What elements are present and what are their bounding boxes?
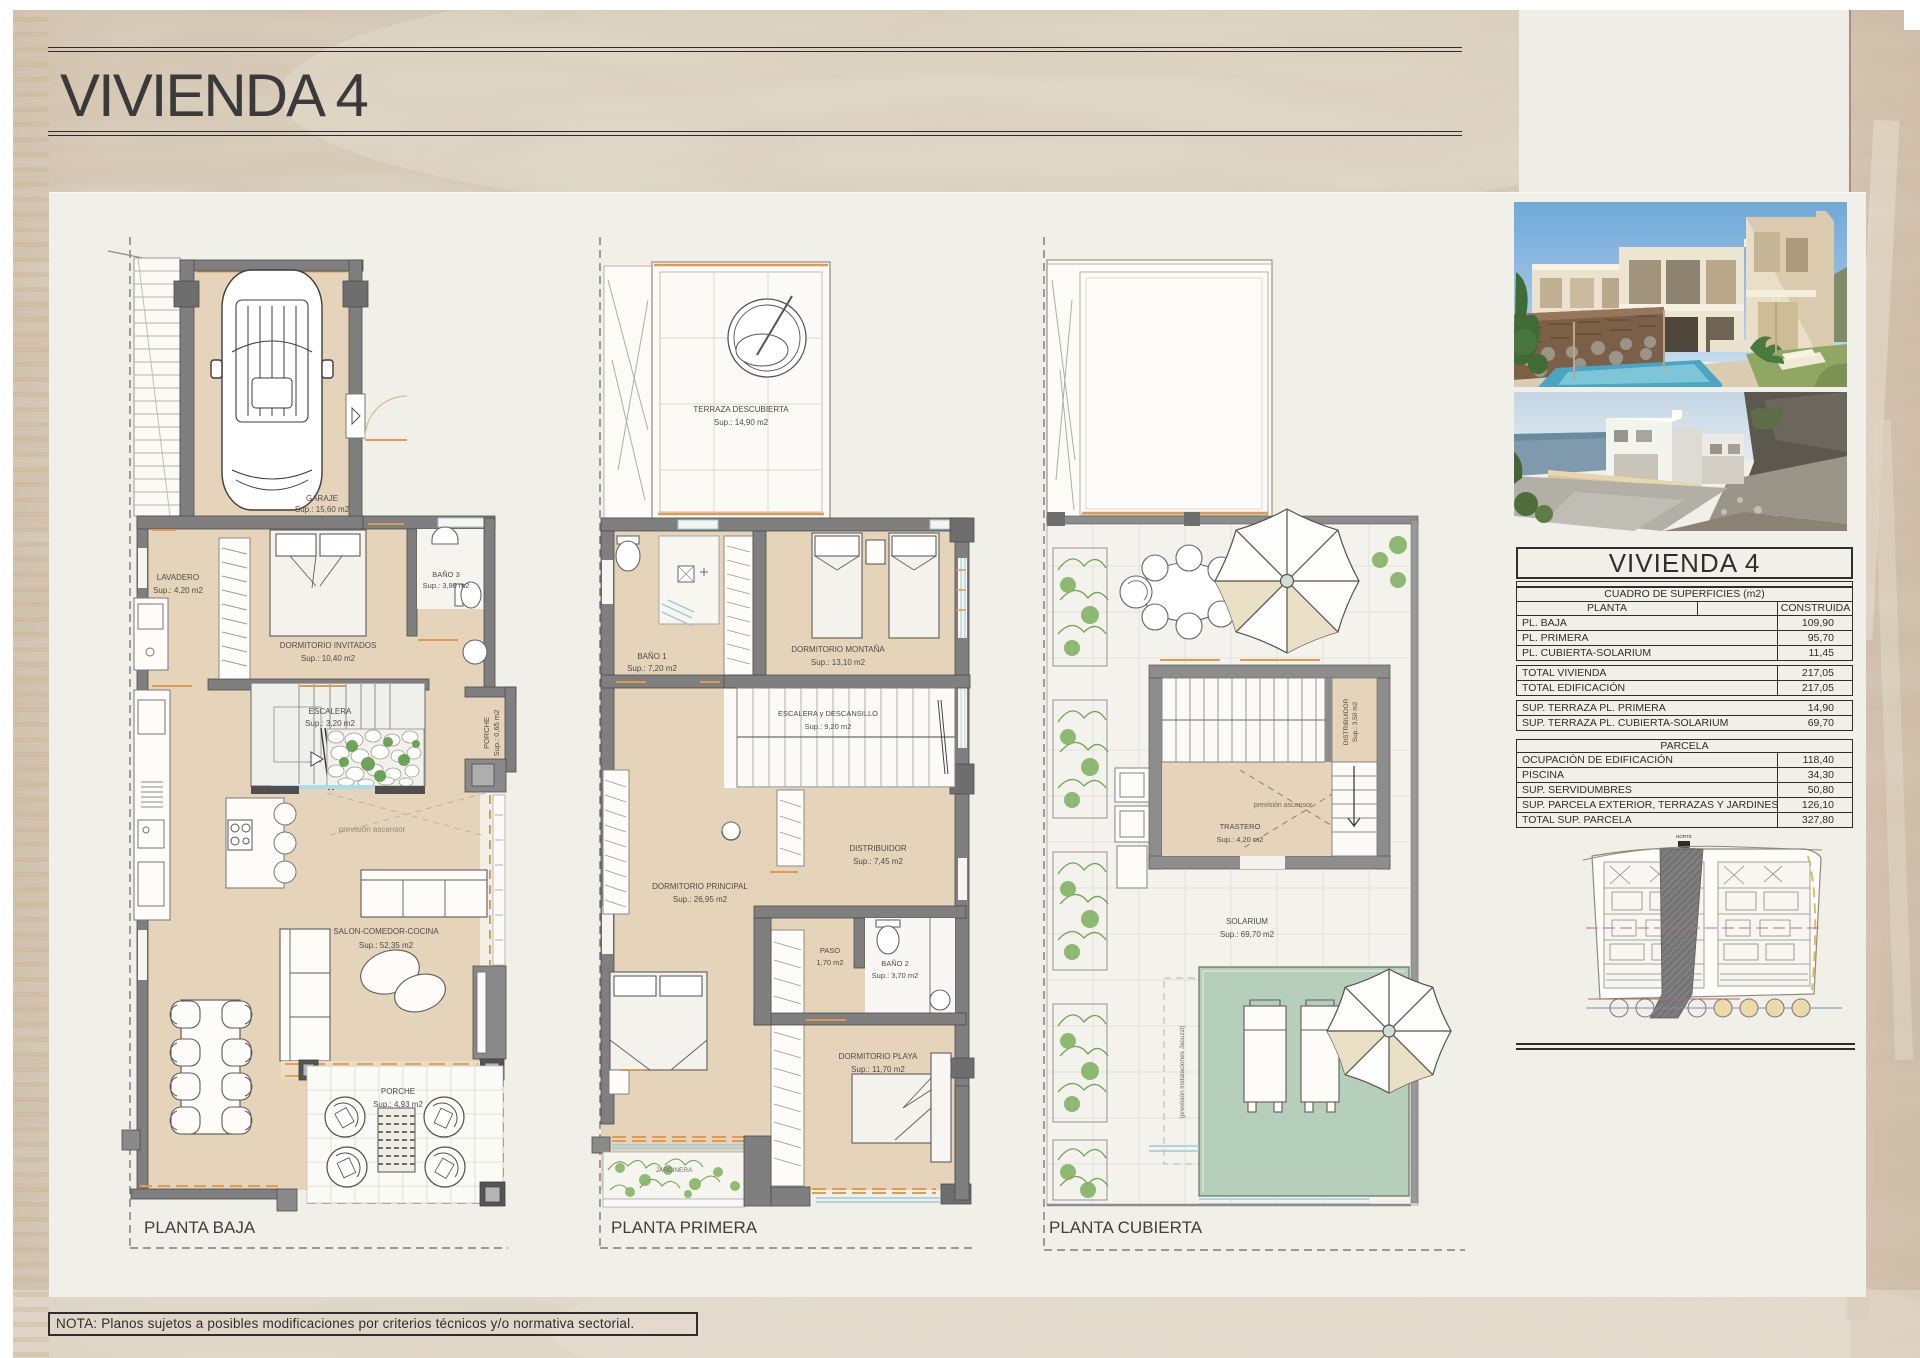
svg-text:Sup.: 15,60 m2: Sup.: 15,60 m2 [295, 505, 350, 514]
svg-text:DISTRIBUIDOR: DISTRIBUIDOR [849, 844, 907, 853]
svg-text:Sup.: 4,93 m2: Sup.: 4,93 m2 [373, 1100, 423, 1109]
svg-text:BAÑO 1: BAÑO 1 [637, 652, 667, 661]
svg-text:Sup.: 13,10 m2: Sup.: 13,10 m2 [811, 658, 866, 667]
svg-text:1,70 m2: 1,70 m2 [816, 958, 843, 967]
svg-text:Sup.: 69,70 m2: Sup.: 69,70 m2 [1220, 930, 1275, 939]
svg-text:Sup.: 9,20 m2: Sup.: 9,20 m2 [805, 722, 852, 731]
svg-text:(previsión instalaciones Jacuz: (previsión instalaciones Jacuzzi) [1179, 1025, 1186, 1118]
svg-text:BAÑO 2: BAÑO 2 [881, 959, 909, 968]
svg-text:Sup.: 0,65 m2: Sup.: 0,65 m2 [492, 710, 501, 757]
svg-text:TRASTERO: TRASTERO [1220, 822, 1261, 831]
svg-text:SOLARIUM: SOLARIUM [1226, 917, 1268, 926]
svg-text:Sup.: 10,40 m2: Sup.: 10,40 m2 [301, 654, 356, 663]
svg-text:Sup.: 3,20 m2: Sup.: 3,20 m2 [305, 719, 355, 728]
svg-text:Sup.: 52,35 m2: Sup.: 52,35 m2 [359, 941, 414, 950]
svg-text:Sup.: 14,90 m2: Sup.: 14,90 m2 [714, 418, 769, 427]
svg-text:Sup.: 7,20 m2: Sup.: 7,20 m2 [627, 664, 677, 673]
svg-text:ESCALERA y DESCANSILLO: ESCALERA y DESCANSILLO [778, 709, 878, 718]
svg-text:previsión ascensor: previsión ascensor [339, 825, 406, 834]
svg-text:PASO: PASO [820, 946, 840, 955]
svg-text:Sup.: 4,20 m2: Sup.: 4,20 m2 [153, 586, 203, 595]
svg-text:Sup.: 3,90 m2: Sup.: 3,90 m2 [423, 581, 470, 590]
svg-text:Sup.: 4,20 m2: Sup.: 4,20 m2 [1217, 835, 1264, 844]
svg-text:DORMITORIO MONTAÑA: DORMITORIO MONTAÑA [791, 645, 885, 654]
svg-text:Sup.: 3,50 m2: Sup.: 3,50 m2 [1352, 701, 1359, 742]
svg-text:DORMITORIO PRINCIPAL: DORMITORIO PRINCIPAL [652, 882, 748, 891]
svg-text:ESCALERA: ESCALERA [309, 707, 352, 716]
svg-text:JARDINERA: JARDINERA [656, 1167, 694, 1174]
svg-text:TERRAZA DESCUBIERTA: TERRAZA DESCUBIERTA [693, 405, 789, 414]
svg-text:BAÑO 3: BAÑO 3 [432, 570, 460, 579]
svg-text:Sup.: 7,45 m2: Sup.: 7,45 m2 [853, 857, 903, 866]
svg-text:SALON-COMEDOR-COCINA: SALON-COMEDOR-COCINA [333, 927, 439, 936]
svg-text:previsión ascensor: previsión ascensor [1254, 802, 1313, 809]
svg-text:Sup.: 11,70 m2: Sup.: 11,70 m2 [851, 1065, 905, 1074]
svg-text:PORCHE: PORCHE [381, 1087, 415, 1096]
svg-text:Sup.: 26,95 m2: Sup.: 26,95 m2 [673, 895, 728, 904]
svg-text:GARAJE: GARAJE [306, 494, 338, 503]
svg-text:DISTRIBUIDOR: DISTRIBUIDOR [1343, 698, 1350, 745]
svg-text:Sup.: 3,70 m2: Sup.: 3,70 m2 [872, 971, 919, 980]
svg-text:NORTE: NORTE [1676, 834, 1692, 839]
svg-text:DORMITORIO PLAYA: DORMITORIO PLAYA [839, 1052, 918, 1061]
svg-text:DORMITORIO INVITADOS: DORMITORIO INVITADOS [280, 641, 377, 650]
svg-text:LAVADERO: LAVADERO [157, 573, 199, 582]
svg-text:PORCHE: PORCHE [482, 717, 491, 749]
